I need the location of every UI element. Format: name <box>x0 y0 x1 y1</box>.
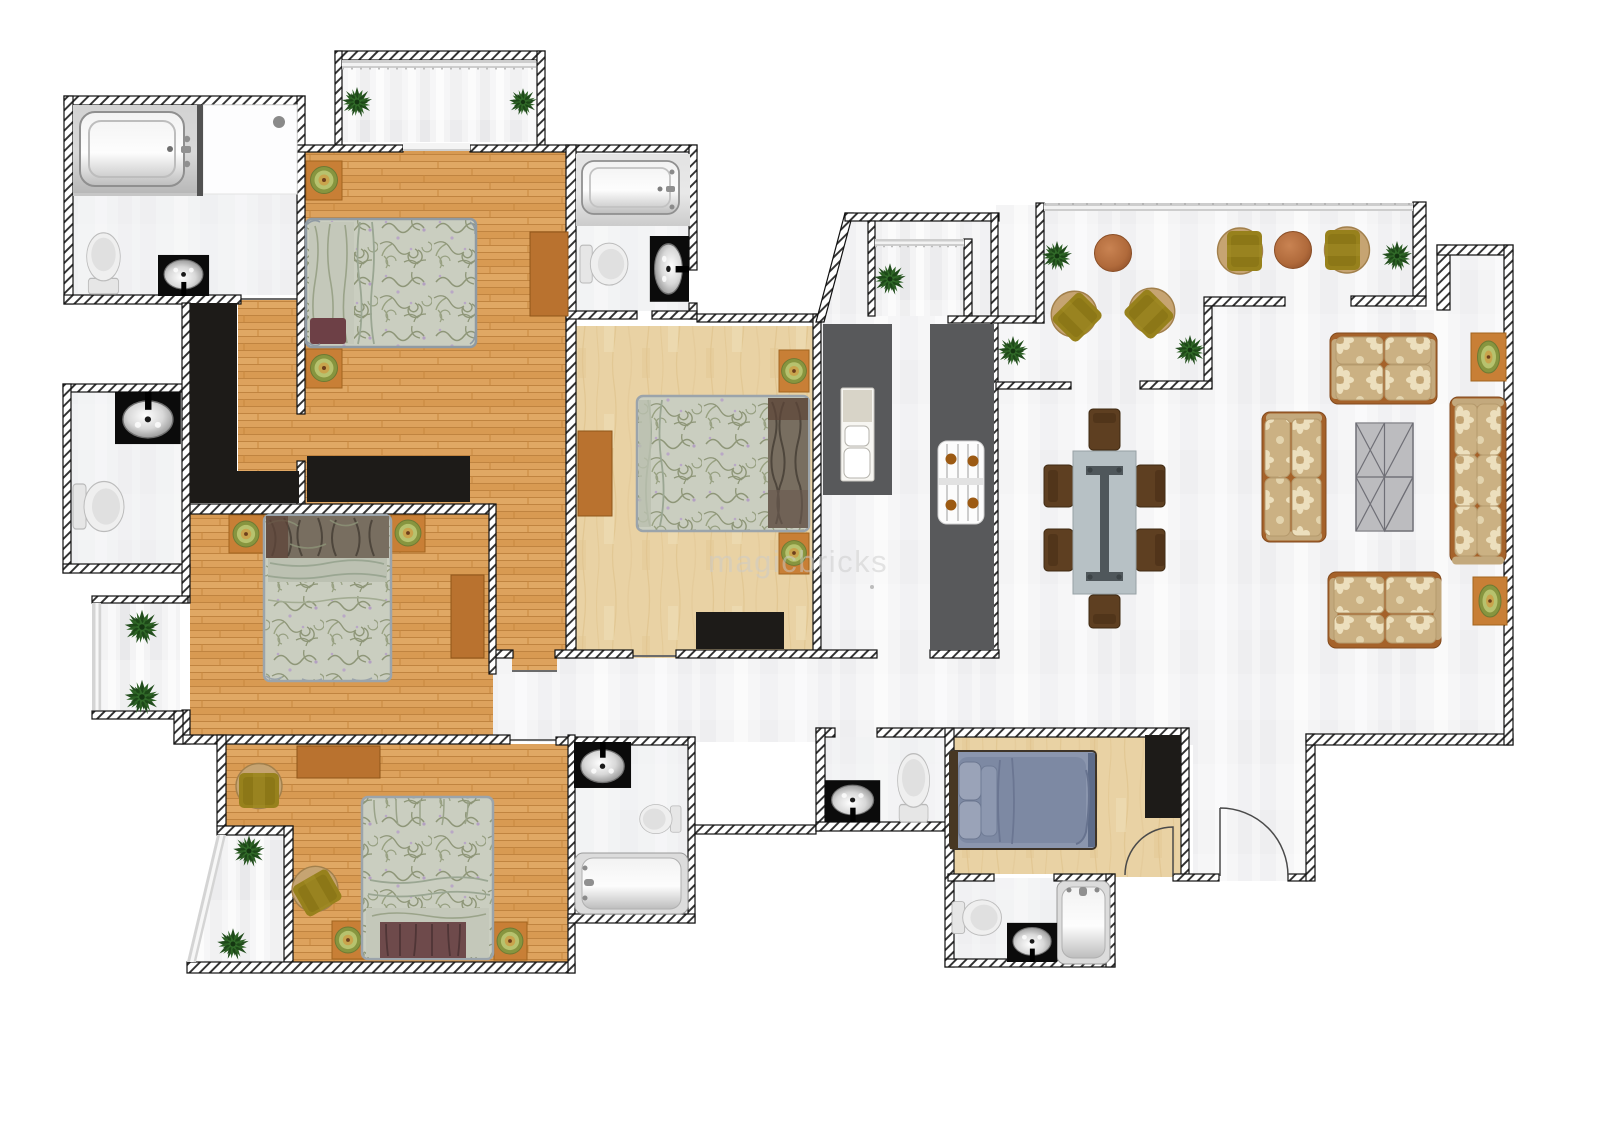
svg-text:magicbricks: magicbricks <box>708 544 888 579</box>
